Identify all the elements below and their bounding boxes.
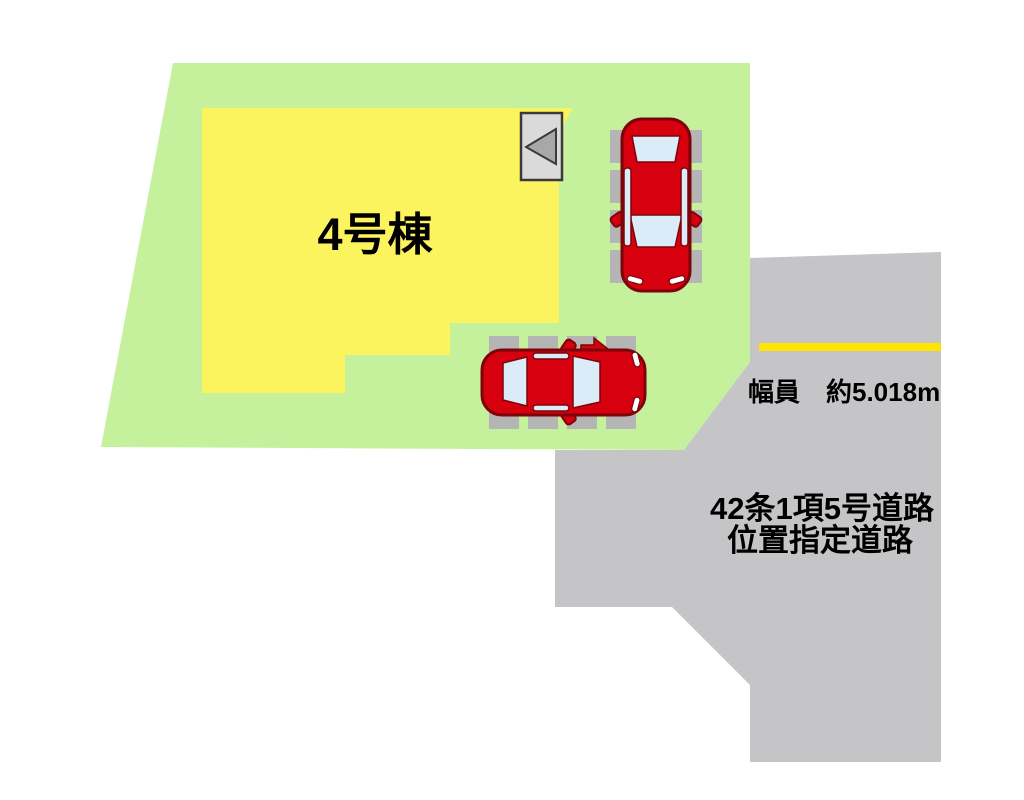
car-side-window [533, 353, 569, 359]
site-plan-drawing: 4号棟 幅員 約5.018m 42条1項5号道路 位置指定道路 [0, 0, 1024, 800]
road-name-line1: 42条1項5号道路 [710, 491, 935, 526]
car-rear-window [503, 357, 527, 406]
car-top-vertical [609, 119, 702, 291]
car-side-window [533, 405, 569, 411]
car-windshield [630, 215, 682, 247]
road-name-line2: 位置指定道路 [727, 523, 914, 558]
site-plan-canvas: 4号棟 幅員 約5.018m 42条1項5号道路 位置指定道路 [0, 0, 1024, 800]
building-label: 4号棟 [317, 209, 433, 260]
parking-space-bottom [482, 336, 645, 429]
road-centerline [759, 343, 941, 351]
parking-space-top [609, 119, 702, 291]
car-side-window [681, 168, 688, 246]
car-bottom-horizontal [482, 338, 645, 426]
car-side-window [624, 168, 631, 246]
car-windshield [573, 356, 600, 408]
road-width-label: 幅員 約5.018m [748, 377, 940, 407]
car-rear-window [632, 136, 680, 162]
entrance-marker [521, 113, 562, 180]
